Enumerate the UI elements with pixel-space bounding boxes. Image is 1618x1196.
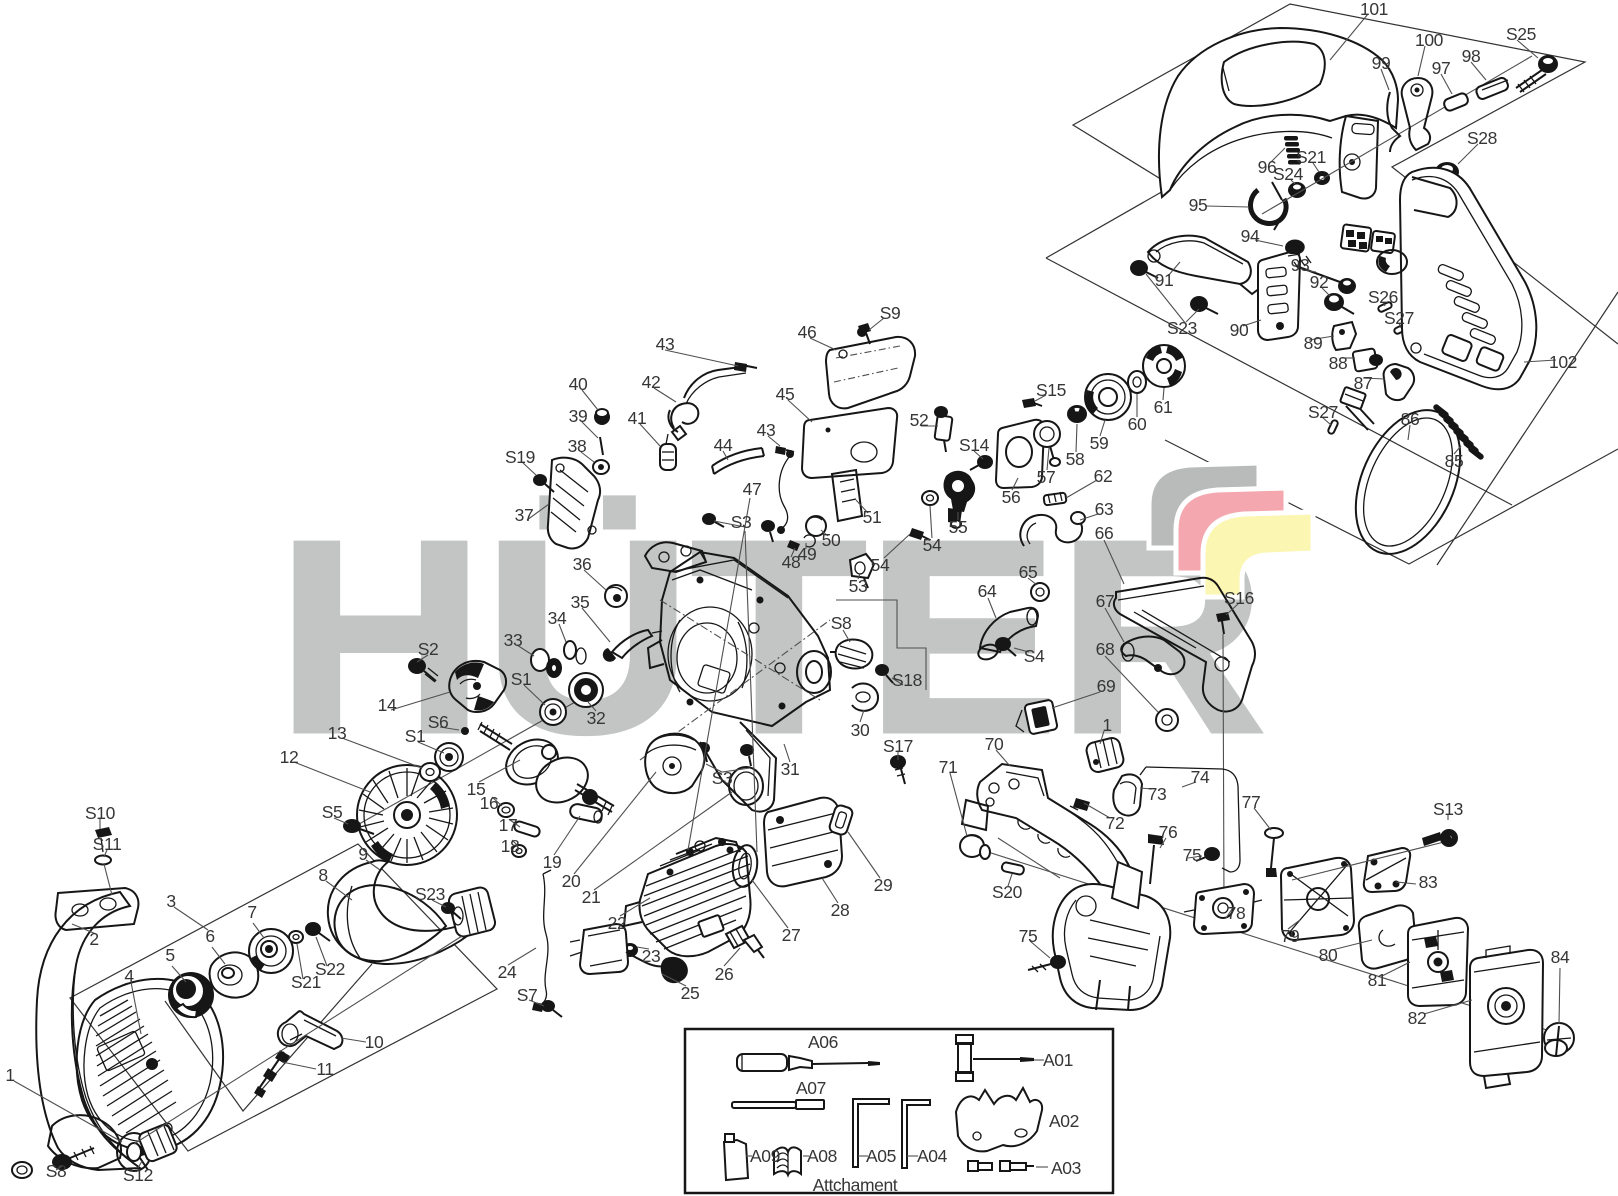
svg-text:59: 59 <box>1090 433 1109 453</box>
svg-text:S4: S4 <box>1024 646 1045 666</box>
svg-text:45: 45 <box>776 384 795 404</box>
svg-text:14: 14 <box>378 695 397 715</box>
svg-text:S10: S10 <box>85 803 116 823</box>
svg-text:71: 71 <box>939 757 958 777</box>
svg-text:A03: A03 <box>1051 1158 1081 1178</box>
svg-text:46: 46 <box>798 322 817 342</box>
svg-text:93: 93 <box>1291 255 1310 275</box>
svg-text:28: 28 <box>831 900 850 920</box>
svg-text:90: 90 <box>1230 320 1249 340</box>
svg-text:S2: S2 <box>418 639 439 659</box>
svg-text:S9: S9 <box>880 303 901 323</box>
svg-text:61: 61 <box>1154 397 1173 417</box>
svg-text:S13: S13 <box>1433 799 1463 819</box>
svg-text:38: 38 <box>568 436 587 456</box>
svg-text:S1: S1 <box>511 669 532 689</box>
svg-text:27: 27 <box>782 925 801 945</box>
svg-text:S18: S18 <box>892 670 922 690</box>
svg-text:A04: A04 <box>917 1146 948 1166</box>
svg-text:18: 18 <box>501 836 520 856</box>
svg-text:43: 43 <box>656 334 675 354</box>
svg-text:A07: A07 <box>796 1078 826 1098</box>
svg-text:76: 76 <box>1159 822 1178 842</box>
svg-text:49: 49 <box>798 544 817 564</box>
svg-text:44: 44 <box>714 435 733 455</box>
svg-text:99: 99 <box>1372 53 1391 73</box>
svg-text:4: 4 <box>124 966 134 986</box>
svg-text:81: 81 <box>1368 970 1387 990</box>
svg-text:A01: A01 <box>1043 1050 1073 1070</box>
svg-text:91: 91 <box>1155 270 1174 290</box>
svg-text:86: 86 <box>1401 409 1420 429</box>
svg-text:S27: S27 <box>1384 308 1414 328</box>
svg-text:2: 2 <box>89 929 98 949</box>
svg-text:58: 58 <box>1066 449 1085 469</box>
svg-text:63: 63 <box>1095 499 1114 519</box>
svg-text:S21: S21 <box>1296 147 1326 167</box>
svg-text:60: 60 <box>1128 414 1147 434</box>
svg-text:20: 20 <box>562 871 581 891</box>
svg-text:53: 53 <box>849 576 868 596</box>
svg-text:Attchament: Attchament <box>813 1175 898 1195</box>
svg-text:23: 23 <box>642 946 661 966</box>
svg-text:S8: S8 <box>831 613 852 633</box>
svg-text:78: 78 <box>1227 903 1246 923</box>
svg-text:37: 37 <box>515 505 534 525</box>
svg-text:S25: S25 <box>1506 24 1536 44</box>
svg-text:24: 24 <box>498 962 517 982</box>
svg-text:54: 54 <box>923 535 942 555</box>
svg-text:19: 19 <box>543 852 562 872</box>
svg-text:S3: S3 <box>731 512 752 532</box>
svg-text:95: 95 <box>1189 195 1208 215</box>
svg-text:33: 33 <box>504 630 523 650</box>
svg-text:75: 75 <box>1019 926 1038 946</box>
svg-text:S5: S5 <box>322 802 343 822</box>
svg-text:94: 94 <box>1241 226 1260 246</box>
svg-text:102: 102 <box>1549 352 1577 372</box>
svg-text:43: 43 <box>757 420 776 440</box>
svg-text:67: 67 <box>1096 591 1115 611</box>
svg-text:70: 70 <box>985 734 1004 754</box>
svg-text:87: 87 <box>1354 373 1373 393</box>
svg-text:22: 22 <box>608 913 627 933</box>
svg-text:62: 62 <box>1094 466 1113 486</box>
svg-text:12: 12 <box>280 747 299 767</box>
svg-text:80: 80 <box>1319 945 1338 965</box>
svg-text:17: 17 <box>499 815 518 835</box>
svg-text:83: 83 <box>1419 872 1438 892</box>
svg-text:41: 41 <box>628 408 647 428</box>
svg-text:36: 36 <box>573 554 592 574</box>
svg-text:S27: S27 <box>1308 402 1338 422</box>
svg-text:S14: S14 <box>959 435 990 455</box>
svg-text:15: 15 <box>467 779 486 799</box>
svg-text:29: 29 <box>874 875 893 895</box>
svg-text:97: 97 <box>1432 58 1451 78</box>
svg-text:S23: S23 <box>415 884 445 904</box>
svg-text:89: 89 <box>1304 333 1323 353</box>
svg-text:11: 11 <box>316 1059 333 1079</box>
svg-text:A05: A05 <box>866 1146 896 1166</box>
svg-text:1: 1 <box>5 1065 14 1085</box>
svg-text:S3: S3 <box>712 768 733 788</box>
svg-text:68: 68 <box>1096 639 1115 659</box>
svg-text:21: 21 <box>582 887 601 907</box>
svg-text:72: 72 <box>1106 813 1125 833</box>
svg-text:10: 10 <box>365 1032 384 1052</box>
svg-text:S26: S26 <box>1368 287 1398 307</box>
svg-text:42: 42 <box>642 372 661 392</box>
svg-text:100: 100 <box>1415 30 1444 50</box>
svg-text:25: 25 <box>681 983 700 1003</box>
svg-text:30: 30 <box>851 720 870 740</box>
svg-text:8: 8 <box>318 865 327 885</box>
svg-text:5: 5 <box>165 945 174 965</box>
svg-text:9: 9 <box>358 844 367 864</box>
svg-text:34: 34 <box>548 608 567 628</box>
svg-text:64: 64 <box>978 581 997 601</box>
svg-text:S16: S16 <box>1224 588 1254 608</box>
svg-text:79: 79 <box>1281 926 1300 946</box>
svg-text:S20: S20 <box>992 882 1023 902</box>
svg-text:88: 88 <box>1329 353 1348 373</box>
svg-text:S15: S15 <box>1036 380 1066 400</box>
svg-text:57: 57 <box>1037 467 1056 487</box>
svg-text:31: 31 <box>781 759 800 779</box>
svg-text:A06: A06 <box>808 1032 838 1052</box>
svg-text:92: 92 <box>1310 272 1329 292</box>
svg-text:S11: S11 <box>93 834 122 854</box>
svg-text:66: 66 <box>1095 523 1114 543</box>
svg-text:S7: S7 <box>517 985 538 1005</box>
svg-text:50: 50 <box>822 530 841 550</box>
svg-text:65: 65 <box>1019 562 1038 582</box>
svg-text:S1: S1 <box>405 726 426 746</box>
svg-text:7: 7 <box>247 902 256 922</box>
svg-text:35: 35 <box>571 592 590 612</box>
svg-text:S6: S6 <box>428 712 449 732</box>
svg-text:6: 6 <box>205 926 214 946</box>
svg-text:56: 56 <box>1002 487 1021 507</box>
svg-text:40: 40 <box>569 374 588 394</box>
svg-text:74: 74 <box>1191 767 1210 787</box>
svg-text:73: 73 <box>1148 784 1167 804</box>
svg-text:85: 85 <box>1445 451 1464 471</box>
svg-text:S23: S23 <box>1167 318 1197 338</box>
svg-text:75: 75 <box>1183 845 1202 865</box>
svg-text:101: 101 <box>1360 0 1388 19</box>
svg-text:26: 26 <box>715 964 734 984</box>
svg-text:S22: S22 <box>315 959 345 979</box>
svg-text:55: 55 <box>949 517 968 537</box>
svg-text:3: 3 <box>166 891 175 911</box>
svg-text:69: 69 <box>1097 676 1116 696</box>
svg-text:77: 77 <box>1242 792 1261 812</box>
svg-text:84: 84 <box>1551 947 1570 967</box>
svg-text:32: 32 <box>587 708 606 728</box>
svg-text:82: 82 <box>1408 1008 1427 1028</box>
svg-text:47: 47 <box>743 479 762 499</box>
svg-text:S12: S12 <box>123 1165 153 1185</box>
svg-text:98: 98 <box>1462 46 1481 66</box>
svg-text:S28: S28 <box>1467 128 1497 148</box>
svg-text:39: 39 <box>569 406 588 426</box>
svg-text:A08: A08 <box>807 1146 837 1166</box>
svg-text:52: 52 <box>910 410 929 430</box>
svg-text:13: 13 <box>328 723 347 743</box>
svg-text:S24: S24 <box>1273 164 1304 184</box>
svg-text:A02: A02 <box>1049 1111 1079 1131</box>
svg-text:51: 51 <box>863 507 882 527</box>
svg-text:1: 1 <box>1102 715 1111 735</box>
svg-text:54: 54 <box>871 555 890 575</box>
svg-text:S17: S17 <box>883 736 913 756</box>
svg-text:S8: S8 <box>46 1161 67 1181</box>
svg-text:S19: S19 <box>505 447 535 467</box>
svg-text:A09: A09 <box>750 1146 780 1166</box>
